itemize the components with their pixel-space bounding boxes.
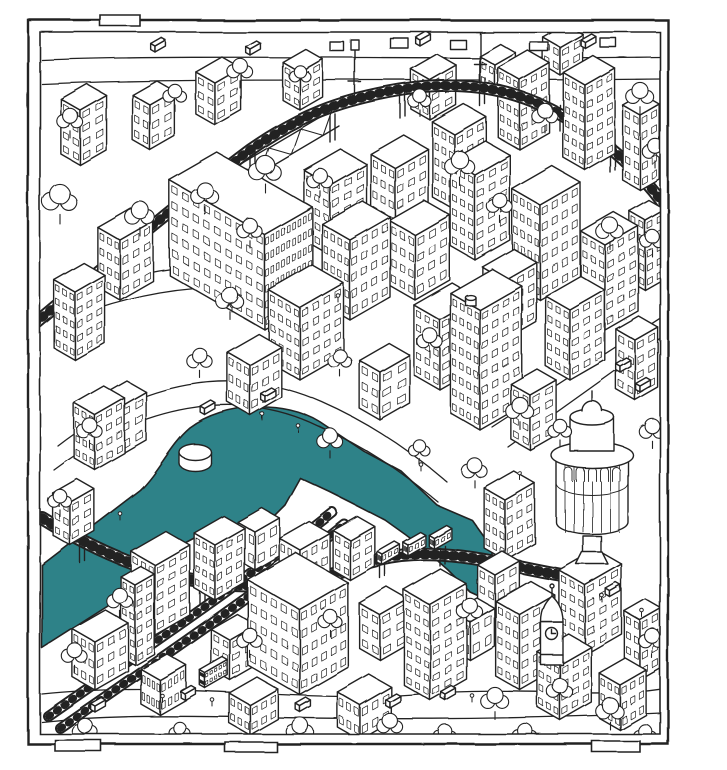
building — [194, 516, 244, 600]
building — [404, 569, 467, 700]
building — [546, 276, 605, 380]
building — [599, 658, 646, 730]
building — [389, 200, 450, 300]
illustration-canvas — [0, 0, 727, 770]
building — [563, 56, 614, 171]
city-map-illustration — [0, 0, 727, 770]
building — [484, 471, 534, 560]
building — [54, 263, 104, 360]
building — [333, 516, 375, 580]
